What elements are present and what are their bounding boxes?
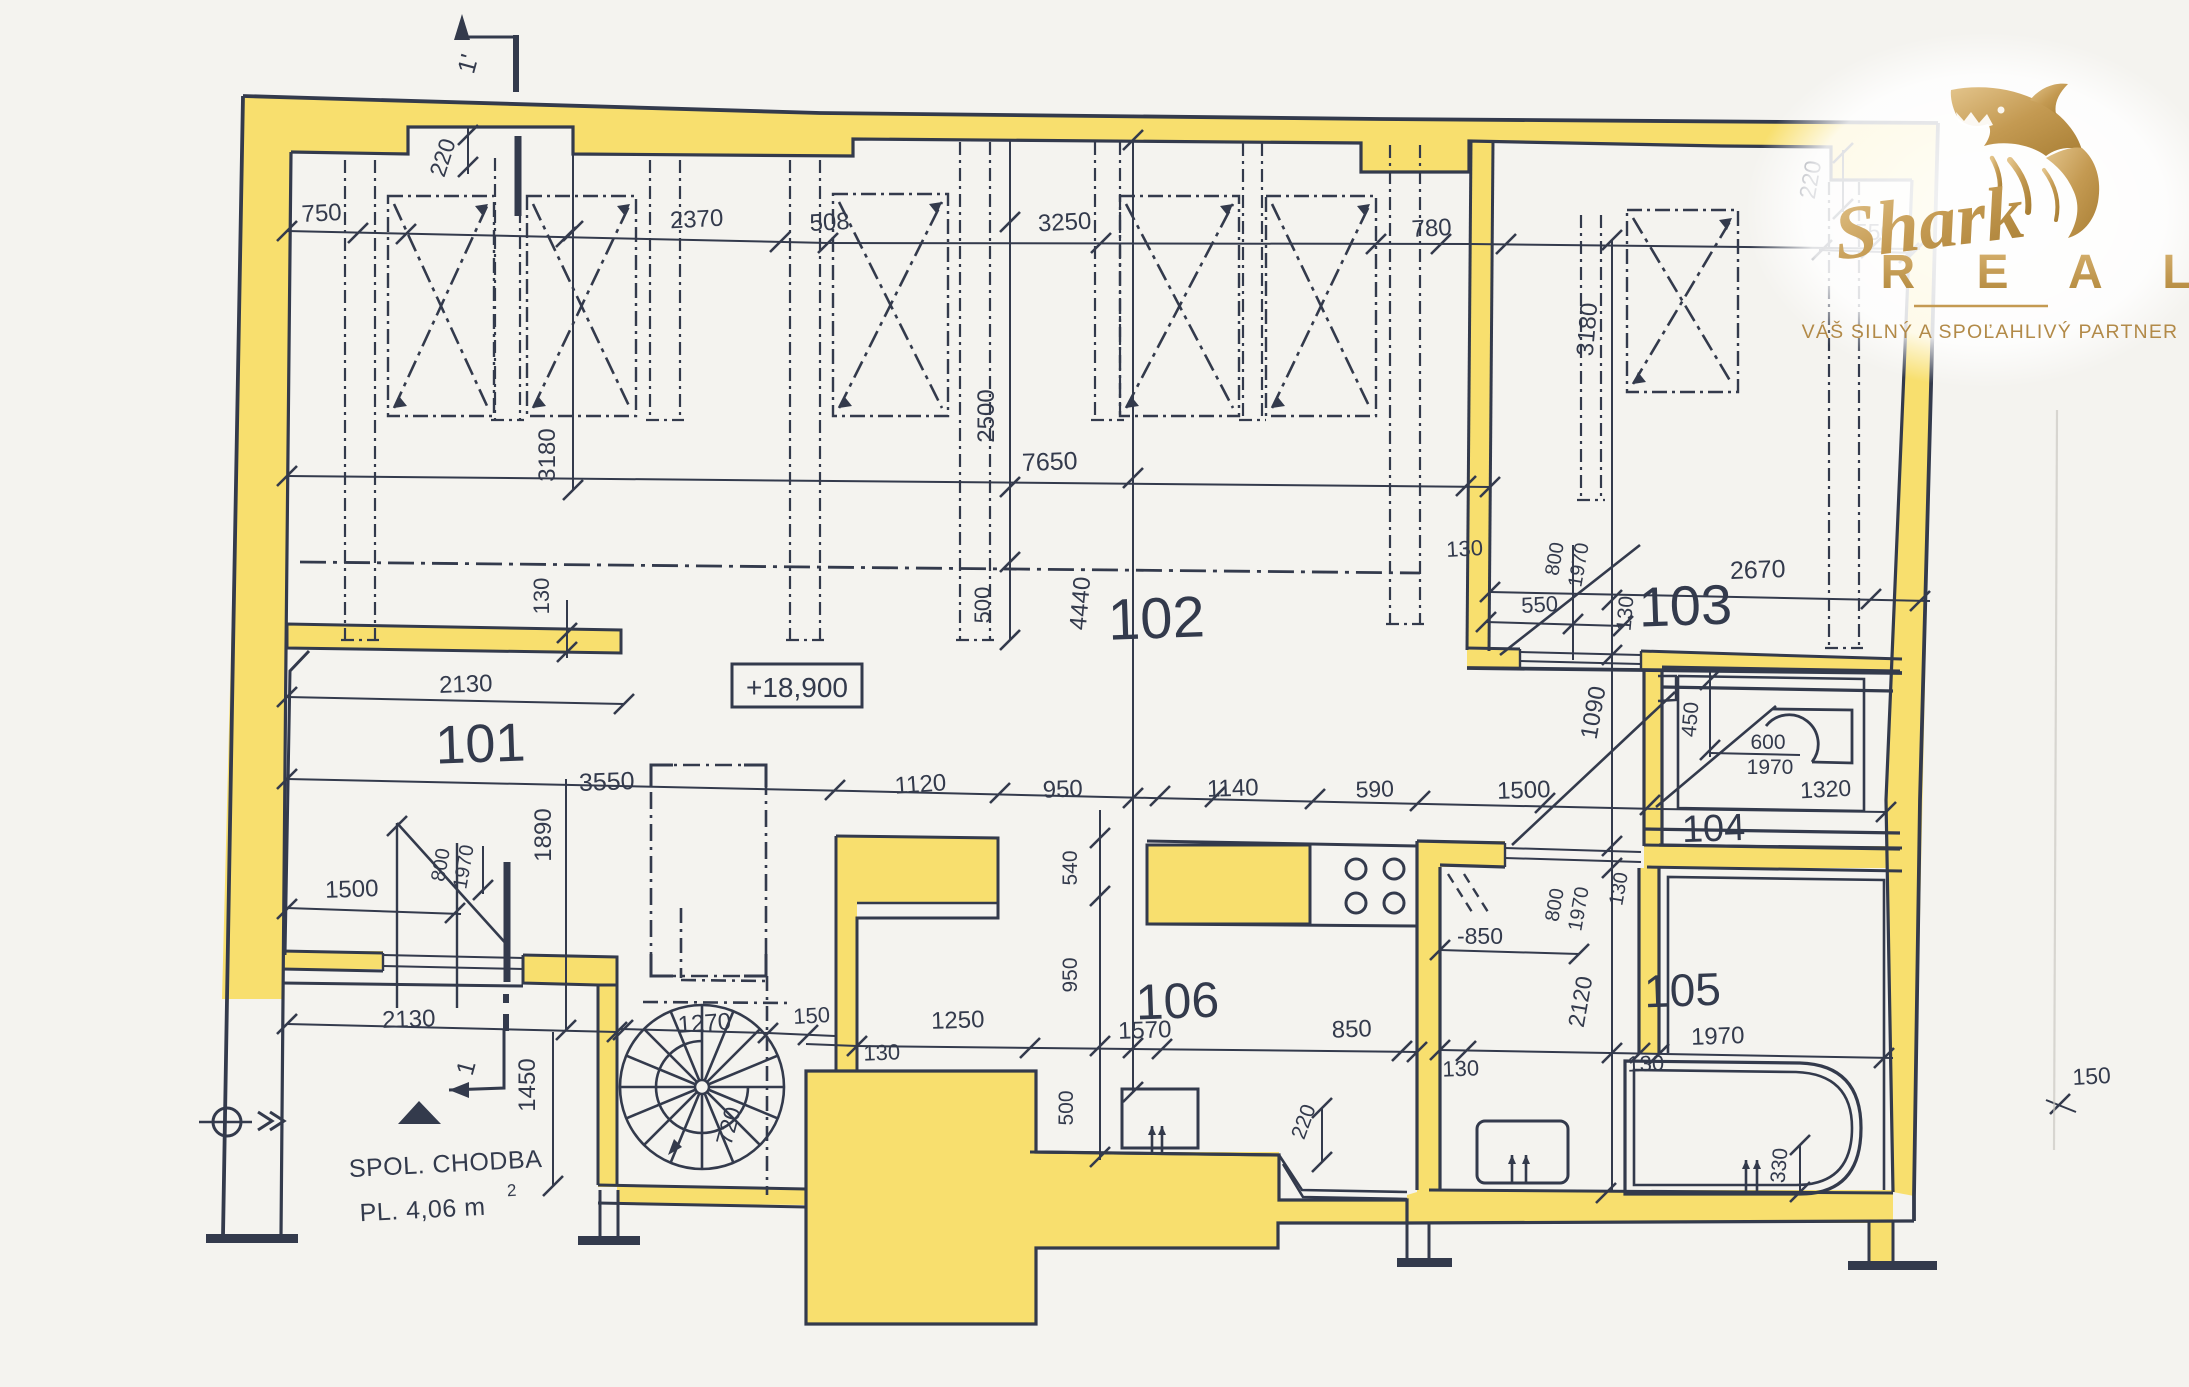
- svg-text:1250: 1250: [931, 1006, 985, 1035]
- svg-text:550: 550: [1521, 591, 1559, 618]
- svg-text:102: 102: [1107, 584, 1206, 652]
- svg-text:1500: 1500: [325, 875, 379, 904]
- svg-text:1970: 1970: [1747, 756, 1794, 779]
- svg-text:R E A L: R E A L: [1880, 246, 2189, 299]
- svg-text:950: 950: [1042, 775, 1083, 803]
- svg-text:130: 130: [863, 1039, 901, 1065]
- svg-text:2130: 2130: [439, 670, 493, 699]
- svg-text:330: 330: [1767, 1147, 1793, 1184]
- svg-text:130: 130: [529, 578, 554, 615]
- svg-text:508: 508: [809, 208, 850, 237]
- svg-text:-850: -850: [1457, 923, 1503, 949]
- svg-text:590: 590: [1355, 775, 1394, 802]
- svg-text:450: 450: [1678, 701, 1704, 738]
- svg-text:950: 950: [1059, 957, 1082, 992]
- svg-text:2130: 2130: [382, 1005, 436, 1034]
- svg-text:3180: 3180: [534, 428, 561, 481]
- svg-text:130: 130: [1613, 595, 1639, 632]
- svg-text:1500: 1500: [1497, 776, 1551, 805]
- svg-text:130: 130: [1446, 535, 1484, 562]
- svg-text:106: 106: [1135, 972, 1220, 1031]
- svg-text:4440: 4440: [1065, 576, 1097, 632]
- svg-text:1450: 1450: [514, 1058, 541, 1111]
- svg-text:130: 130: [1442, 1055, 1480, 1081]
- svg-text:1970: 1970: [1691, 1022, 1745, 1051]
- svg-text:3180: 3180: [1572, 302, 1604, 358]
- svg-text:1120: 1120: [894, 769, 947, 800]
- svg-text:130: 130: [1627, 1050, 1665, 1076]
- svg-text:150: 150: [2072, 1062, 2112, 1090]
- svg-text:780: 780: [1411, 214, 1452, 243]
- svg-text:1270: 1270: [677, 1008, 732, 1039]
- svg-text:1140: 1140: [1206, 774, 1259, 803]
- svg-text:2500: 2500: [973, 389, 1000, 442]
- svg-text:750: 750: [301, 199, 342, 228]
- svg-text:103: 103: [1638, 572, 1734, 638]
- svg-text:105: 105: [1643, 963, 1722, 1018]
- svg-text:VÁŠ SILNÝ A SPOĽAHLIVÝ PARTNER: VÁŠ SILNÝ A SPOĽAHLIVÝ PARTNER: [1802, 320, 2179, 343]
- svg-text:3550: 3550: [578, 767, 635, 797]
- svg-text:1890: 1890: [530, 808, 557, 861]
- svg-text:540: 540: [1059, 850, 1082, 885]
- svg-text:7650: 7650: [1021, 447, 1078, 477]
- svg-text:150: 150: [793, 1002, 831, 1029]
- svg-text:500: 500: [970, 587, 995, 624]
- svg-text:850: 850: [1331, 1015, 1372, 1043]
- svg-text:500: 500: [1055, 1090, 1078, 1125]
- svg-text:1320: 1320: [1799, 775, 1851, 804]
- svg-text:2: 2: [506, 1181, 516, 1200]
- svg-text:600: 600: [1750, 731, 1785, 754]
- svg-text:2370: 2370: [669, 205, 724, 235]
- svg-text:104: 104: [1681, 807, 1746, 851]
- svg-text:2670: 2670: [1729, 555, 1786, 585]
- svg-text:+18,900: +18,900: [746, 672, 848, 703]
- svg-text:3250: 3250: [1037, 208, 1092, 238]
- svg-text:101: 101: [434, 712, 526, 775]
